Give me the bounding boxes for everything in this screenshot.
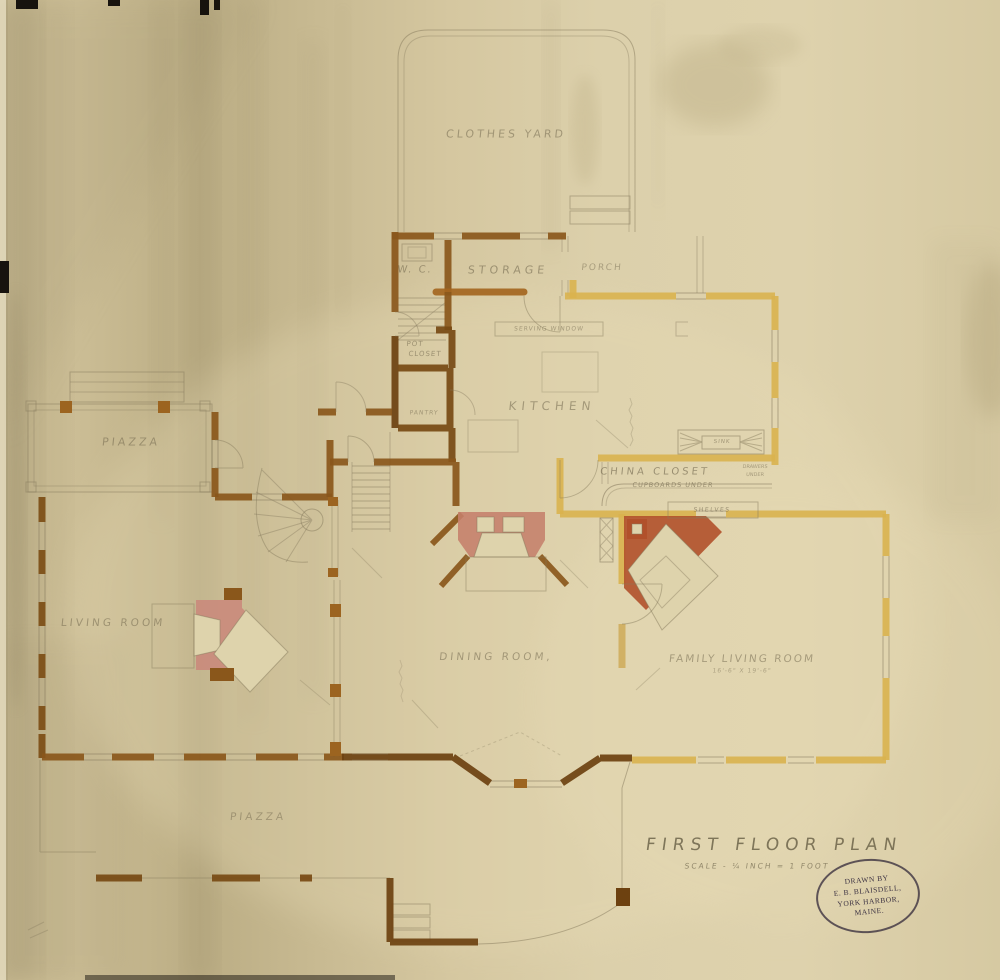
label-piazza-left: PIAZZA — [101, 436, 160, 449]
label-cupboards-under: CUPBOARDS UNDER — [632, 481, 714, 489]
label-sink: SINK — [713, 439, 730, 445]
label-storage: STORAGE — [467, 264, 549, 277]
label-flr-dimension: 16'-6" X 19'-6" — [712, 668, 772, 675]
label-porch: PORCH — [581, 263, 623, 273]
stamp-line-state: MAINE. — [854, 906, 884, 918]
label-wc: W. C. — [397, 265, 433, 276]
floor-plan-drawing — [0, 0, 1000, 980]
drawing-scale-note: SCALE - ¼ INCH = 1 FOOT — [684, 862, 830, 871]
label-clothes-yard: CLOTHES YARD — [445, 128, 566, 141]
label-dining-room: DINING ROOM, — [439, 651, 554, 663]
label-living-room: LIVING ROOM — [60, 617, 166, 629]
label-drawers-under-1: DRAWERS — [742, 464, 768, 470]
label-pot: POT — [406, 340, 424, 348]
label-shelves: SHELVES — [693, 507, 731, 514]
label-piazza-bottom: PIAZZA — [229, 811, 286, 823]
label-drawers-under-2: UNDER — [746, 472, 765, 478]
drawing-sheet: CLOTHES YARD W. C. STORAGE PORCH SERVING… — [0, 0, 1000, 980]
label-china-closet: CHINA CLOSET — [600, 467, 711, 478]
label-kitchen: KITCHEN — [508, 399, 596, 413]
paper-texture — [0, 0, 1000, 980]
label-pantry: PANTRY — [409, 410, 439, 417]
label-closet: CLOSET — [408, 350, 442, 358]
label-serving-window: SERVING WINDOW — [514, 326, 585, 333]
drawing-title: FIRST FLOOR PLAN — [644, 835, 903, 855]
label-family-living-room: FAMILY LIVING ROOM — [668, 653, 815, 665]
